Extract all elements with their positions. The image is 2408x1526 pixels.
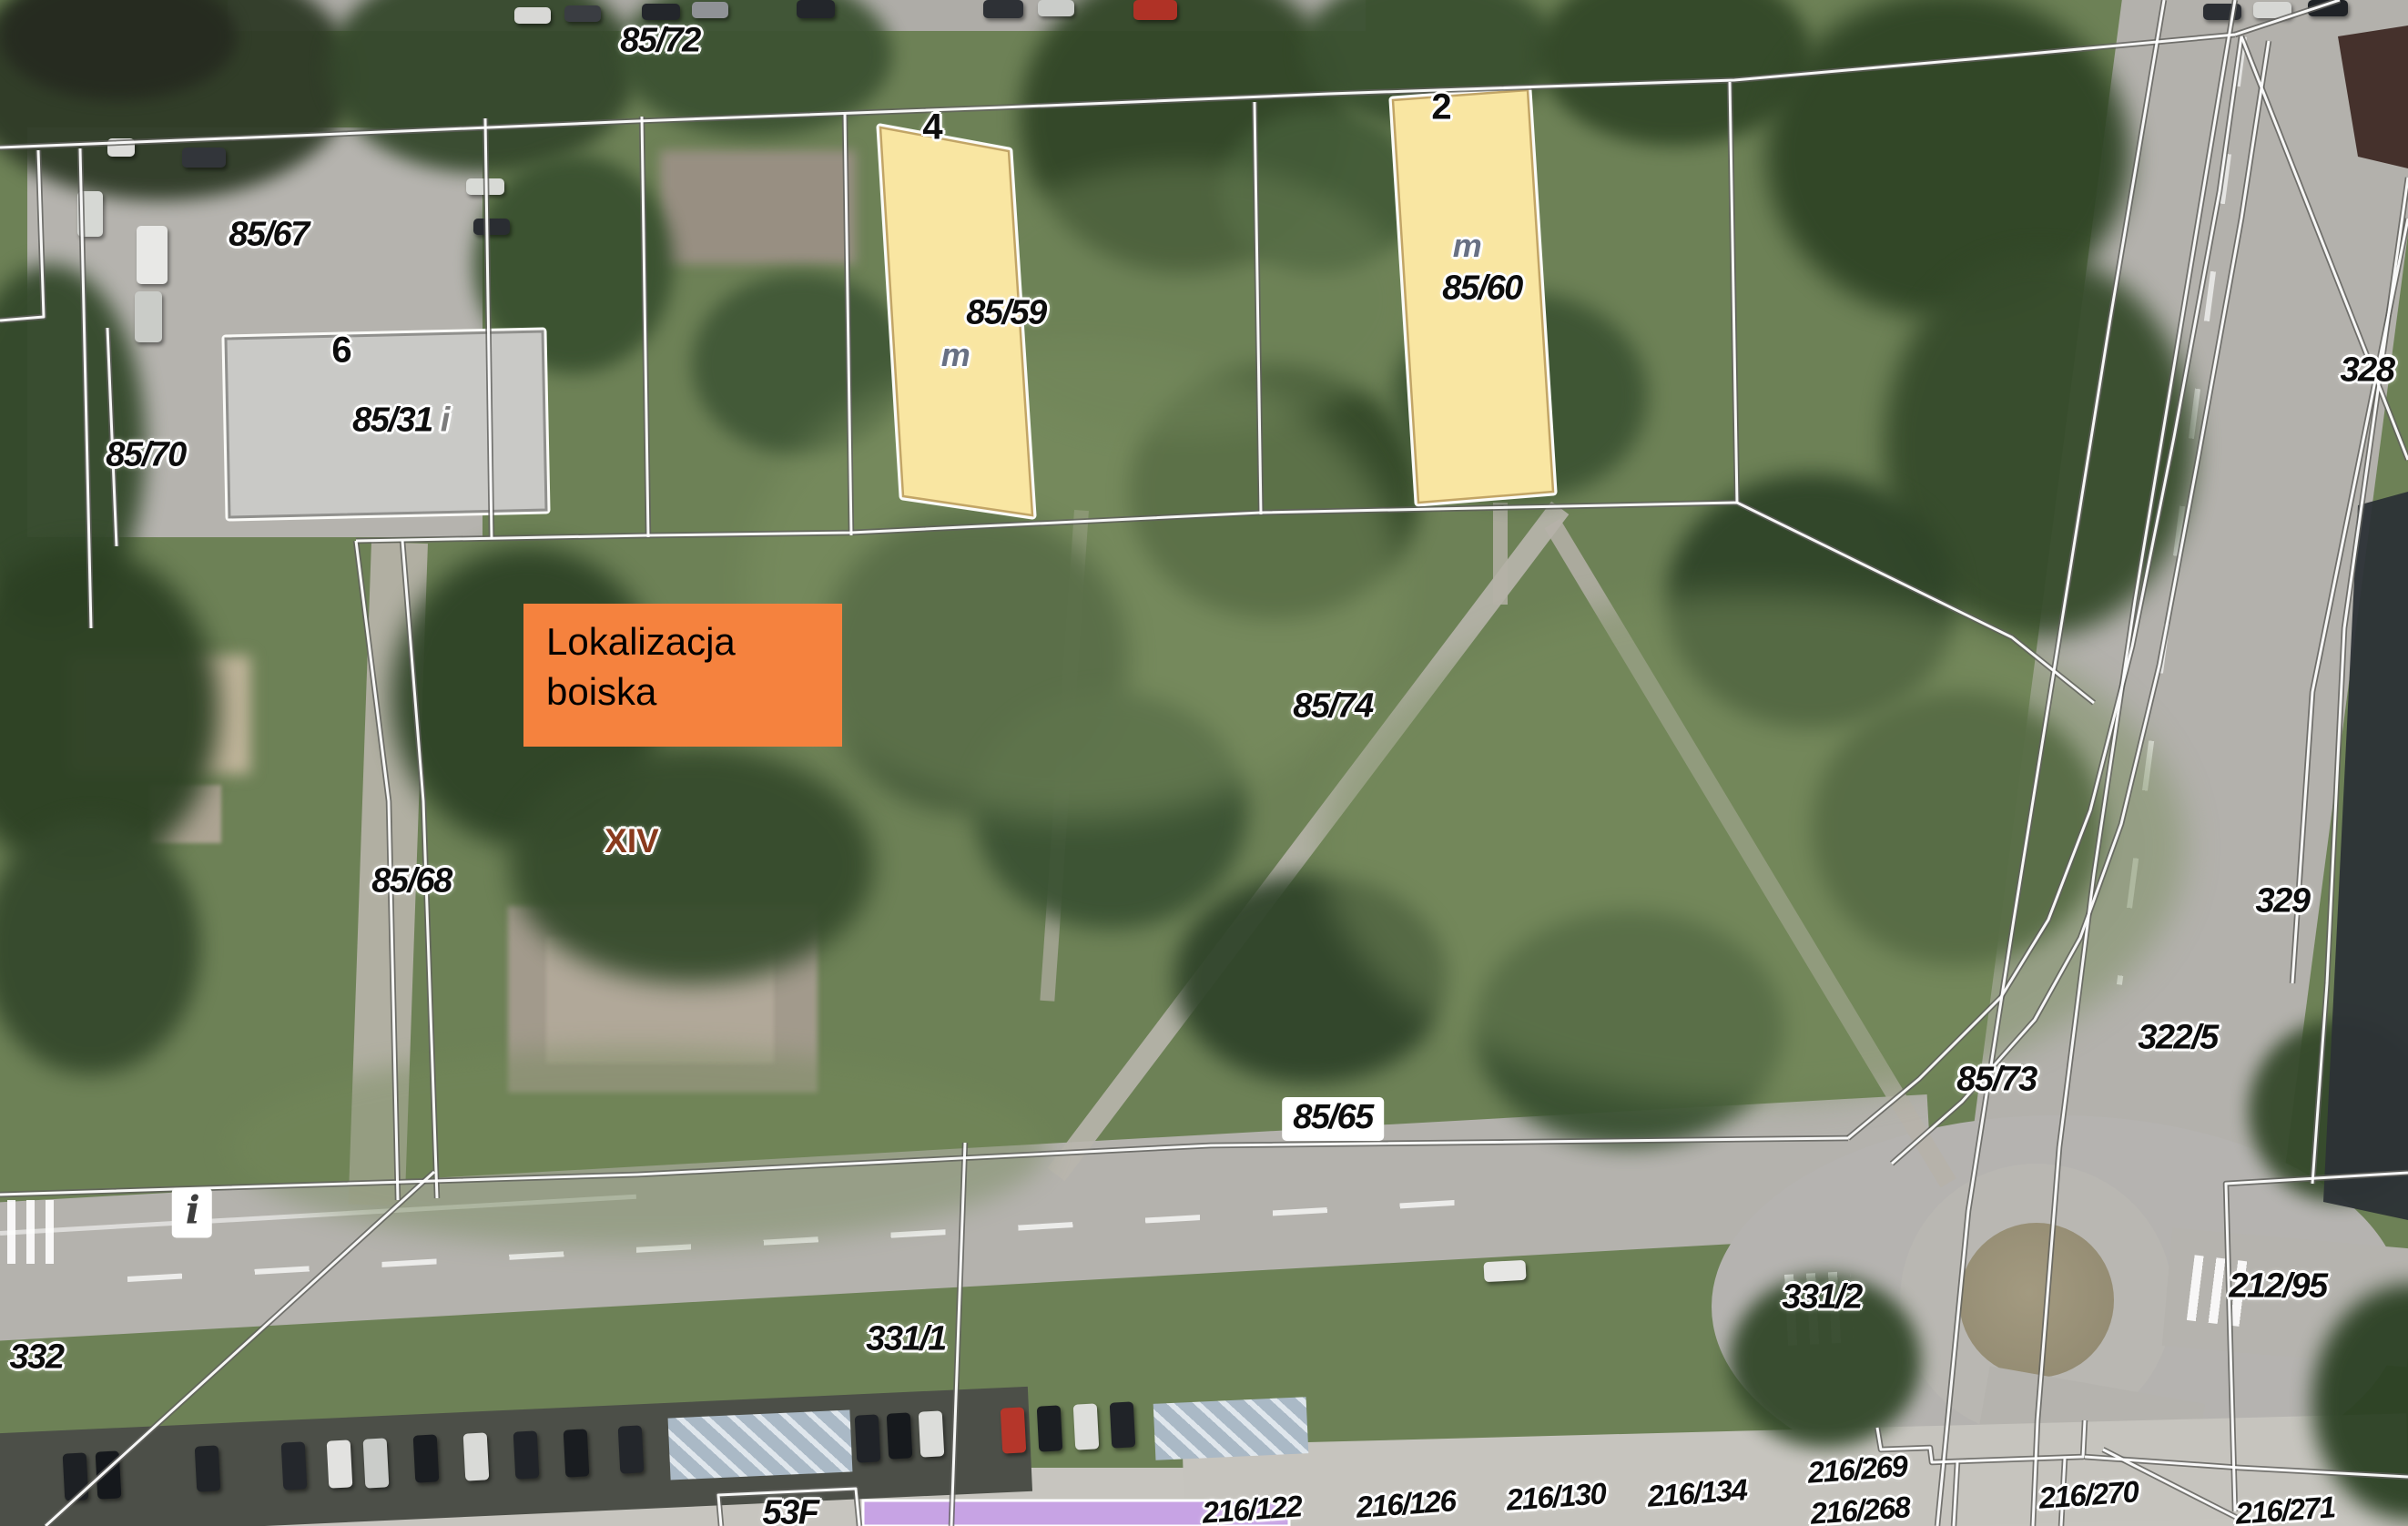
info-symbol: i bbox=[186, 1188, 198, 1233]
parcel-label-85-59: 85/59 bbox=[966, 294, 1046, 333]
parcel-label-216-270: 216/270 bbox=[2037, 1474, 2139, 1515]
parcel-label-216-271: 216/271 bbox=[2234, 1490, 2335, 1526]
parcel-suffix-i: i bbox=[441, 402, 449, 440]
parcel-boundary-lines bbox=[0, 0, 2408, 1526]
parcel-label-216-134: 216/134 bbox=[1646, 1472, 1747, 1513]
parcel-label-85-72: 85/72 bbox=[620, 22, 700, 61]
info-symbol-box: i bbox=[172, 1188, 212, 1238]
building-number-53F: 53F bbox=[763, 1494, 818, 1526]
dark-building-top-right bbox=[2338, 25, 2408, 168]
parcel-label-85-65: 85/65 bbox=[1282, 1097, 1384, 1141]
parcel-label-332: 332 bbox=[10, 1338, 64, 1378]
parcel-label-216-268: 216/268 bbox=[1809, 1490, 1910, 1526]
cadastral-overlay bbox=[0, 0, 2408, 1526]
annotation-box-lokalizacja-boiska: Lokalizacja boiska bbox=[523, 604, 842, 747]
usage-mark-m-left: m bbox=[941, 336, 970, 374]
parcel-label-216-126: 216/126 bbox=[1355, 1483, 1456, 1524]
parcel-label-329: 329 bbox=[2256, 882, 2310, 921]
usage-mark-m-right: m bbox=[1453, 227, 1481, 265]
parcel-label-216-122: 216/122 bbox=[1201, 1489, 1302, 1526]
annotation-line-1: Lokalizacja bbox=[546, 616, 842, 666]
building-number-4: 4 bbox=[922, 107, 941, 148]
parcel-label-331-2: 331/2 bbox=[1782, 1278, 1862, 1317]
annotation-line-2: boiska bbox=[546, 666, 842, 717]
parcel-label-85-74: 85/74 bbox=[1293, 687, 1373, 727]
parcel-label-331-1: 331/1 bbox=[866, 1320, 946, 1359]
aerial-map-canvas[interactable]: 85/72 85/67 85/70 6 85/31 i 4 85/59 m 2 … bbox=[0, 0, 2408, 1526]
parcel-label-322-5: 322/5 bbox=[2138, 1019, 2218, 1058]
parcel-label-85-31: 85/31 i bbox=[352, 402, 449, 441]
parcel-label-212-95: 212/95 bbox=[2229, 1267, 2326, 1307]
parcel-label-85-68: 85/68 bbox=[371, 862, 452, 901]
parcel-label-216-269: 216/269 bbox=[1806, 1449, 1907, 1490]
parcel-label-85-67: 85/67 bbox=[229, 216, 309, 255]
parcel-label-328: 328 bbox=[2341, 351, 2394, 391]
district-label-xiv: XIV bbox=[605, 822, 659, 860]
parcel-label-85-60: 85/60 bbox=[1442, 270, 1522, 309]
building-number-6: 6 bbox=[331, 331, 351, 371]
building-number-2: 2 bbox=[1431, 87, 1450, 128]
parcel-label-85-73: 85/73 bbox=[1956, 1061, 2037, 1100]
parcel-number: 85/31 bbox=[352, 402, 432, 440]
parcel-label-216-130: 216/130 bbox=[1505, 1476, 1606, 1517]
parcel-label-85-70: 85/70 bbox=[106, 436, 186, 475]
